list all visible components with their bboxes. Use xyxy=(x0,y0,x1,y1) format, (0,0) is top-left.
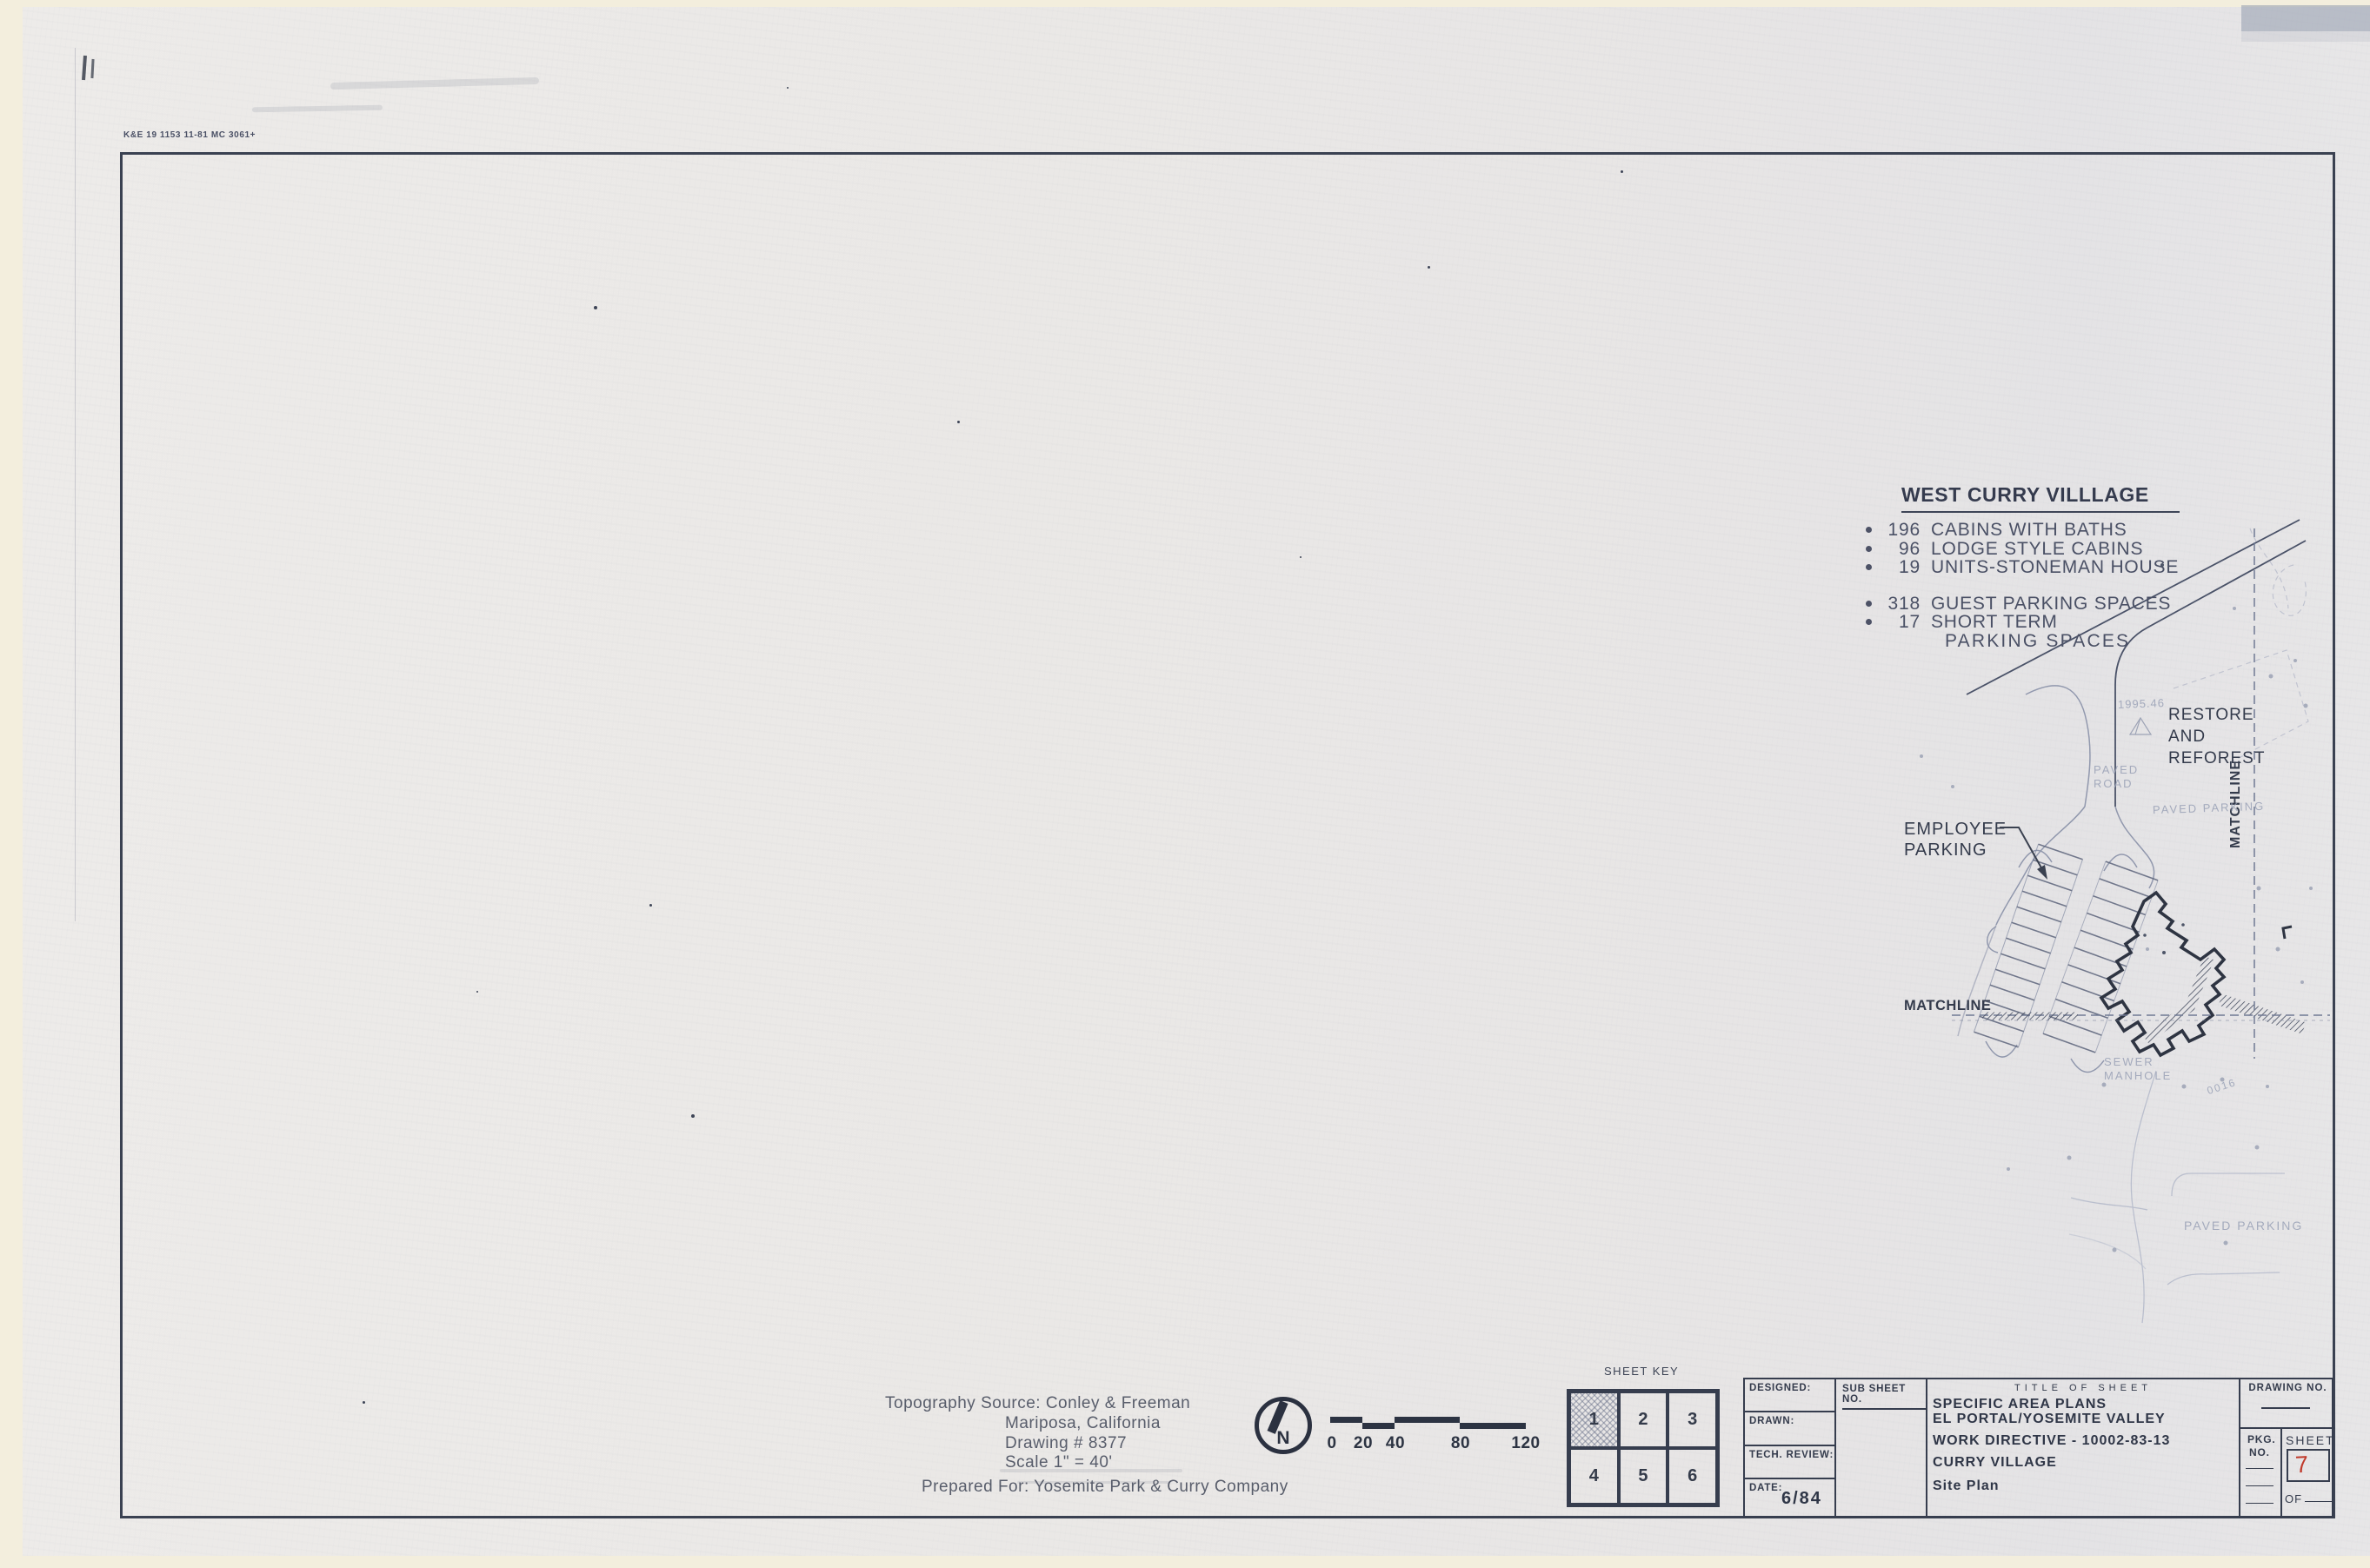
drawing-no-label: DRAWING NO. xyxy=(2240,1383,2335,1393)
bottom-faint-roads xyxy=(2069,1071,2285,1323)
bullet-icon xyxy=(1866,527,1872,533)
sheet-key-grid: 1 2 3 4 5 6 xyxy=(1567,1389,1720,1507)
note-item: 318 GUEST PARKING SPACES xyxy=(1862,595,2332,614)
note-text: LODGE STYLE CABINS xyxy=(1931,540,2143,559)
work-directive-line: WORK DIRECTIVE - 10002-83-13 xyxy=(1933,1433,2170,1449)
sub-sheet-label: SUB SHEET NO. xyxy=(1842,1384,1926,1410)
sheet-key-title: SHEET KEY xyxy=(1604,1365,1679,1378)
scale-tick-label: 120 xyxy=(1511,1434,1540,1453)
sheet-title-line1: SPECIFIC AREA PLANS xyxy=(1933,1397,2107,1412)
title-of-sheet-header: TITLE OF SHEET xyxy=(1927,1383,2239,1393)
building-bracket-mark xyxy=(2283,927,2292,939)
paper-fold-line xyxy=(75,48,76,921)
sheet-key-cell: 2 xyxy=(1619,1392,1668,1448)
of-blank xyxy=(2305,1494,2333,1502)
bullet-icon xyxy=(1866,601,1872,607)
scale-tick-label: 0 xyxy=(1327,1434,1336,1453)
title-block-signatures: DESIGNED: DRAWN: TECH. REVIEW: DATE: 6/8… xyxy=(1745,1379,1834,1516)
scan-band-top-right-2 xyxy=(2241,31,2370,42)
employee-parking-label: EMPLOYEE PARKING xyxy=(1904,819,2007,860)
note-text: CABINS WITH BATHS xyxy=(1931,521,2127,540)
note-item: 96 LODGE STYLE CABINS xyxy=(1862,540,2332,559)
pkg-no-divider xyxy=(2280,1427,2282,1516)
sheet-label: SHEET xyxy=(2286,1433,2335,1447)
title-block: DESIGNED: DRAWN: TECH. REVIEW: DATE: 6/8… xyxy=(1743,1378,2333,1518)
note-count: 96 xyxy=(1882,540,1921,559)
of-label: OF xyxy=(2285,1492,2302,1505)
note-text: SHORT TERM xyxy=(1931,613,2058,632)
notes-title: WEST CURRY VILLLAGE xyxy=(1901,483,2180,513)
pkg-blank-1 xyxy=(2246,1462,2273,1469)
scale-tick-label: 80 xyxy=(1451,1434,1470,1453)
pkg-blank-3 xyxy=(2246,1497,2273,1504)
scale-segment xyxy=(1362,1423,1395,1429)
pkg-no-label: NO. xyxy=(2249,1446,2270,1458)
paved-parking-lower-label: PAVED PARKING xyxy=(2184,1219,2303,1232)
note-count: 196 xyxy=(1882,521,1921,540)
topo-source-line: Drawing # 8377 xyxy=(1005,1434,1127,1453)
note-item: 196 CABINS WITH BATHS xyxy=(1862,521,2332,540)
sheet-key-cell: 4 xyxy=(1569,1448,1619,1505)
sheet-key-cell: 3 xyxy=(1668,1392,1717,1448)
topo-source-line: Scale 1" = 40' xyxy=(1005,1453,1113,1472)
designed-label: DESIGNED: xyxy=(1749,1383,1811,1393)
topo-source-line: Mariposa, California xyxy=(1005,1414,1161,1433)
sheet-title-line2: EL PORTAL/YOSEMITE VALLEY xyxy=(1933,1412,2166,1427)
paper-manufacturer-stamp: K&E 19 1153 11-81 MC 3061+ xyxy=(123,130,256,140)
north-arrow-icon: N xyxy=(1255,1397,1312,1454)
elevation-label: 1995.46 xyxy=(2118,696,2166,712)
paper-speck xyxy=(787,87,789,89)
north-letter: N xyxy=(1259,1428,1308,1449)
sheet-number-box: 7 xyxy=(2287,1449,2330,1482)
site-plan-line: Site Plan xyxy=(1933,1478,2000,1494)
note-count: 19 xyxy=(1882,558,1921,577)
note-item: 19 UNITS-STONEMAN HOUSE xyxy=(1862,558,2332,577)
sub-sheet-column: SUB SHEET NO. xyxy=(1834,1379,1926,1516)
sewer-manhole-label: SEWER MANHOLE xyxy=(2104,1055,2172,1083)
drawing-no-column: DRAWING NO. PKG. NO. SHEET 7 OF xyxy=(2239,1379,2335,1516)
paved-road-label: PAVED ROAD xyxy=(2094,763,2139,791)
scale-segment xyxy=(1460,1423,1526,1429)
scale-segment xyxy=(1395,1417,1460,1423)
topo-source-line: Topography Source: Conley & Freeman xyxy=(885,1394,1190,1413)
bullet-icon xyxy=(1866,564,1872,570)
west-curry-village-notes: WEST CURRY VILLLAGE 196 CABINS WITH BATH… xyxy=(1862,483,2332,650)
curry-village-line: CURRY VILLAGE xyxy=(1933,1455,2057,1471)
pkg-label: PKG. xyxy=(2247,1433,2276,1445)
pkg-blank-2 xyxy=(2246,1479,2273,1486)
drawing-no-blank xyxy=(2261,1397,2310,1409)
prepared-for-line: Prepared For: Yosemite Park & Curry Comp… xyxy=(922,1478,1288,1497)
scale-tick-label: 40 xyxy=(1386,1434,1405,1453)
bullet-icon xyxy=(1866,619,1872,625)
sheet-key-cell: 5 xyxy=(1619,1448,1668,1505)
elevation-triangle-symbol xyxy=(2130,718,2151,734)
note-text: GUEST PARKING SPACES xyxy=(1931,595,2171,614)
sheet-number-value: 7 xyxy=(2294,1452,2309,1479)
note-count: 17 xyxy=(1882,613,1921,632)
courtyard-walkway-hatch xyxy=(2146,958,2304,1040)
bullet-icon xyxy=(1866,546,1872,552)
scan-band-top-right xyxy=(2241,5,2370,31)
scale-tick-label: 20 xyxy=(1354,1434,1373,1453)
matchline-horizontal-label: MATCHLINE xyxy=(1904,998,1991,1014)
tech-review-label: TECH. REVIEW: xyxy=(1749,1450,1834,1460)
restore-reforest-label: RESTORE AND REFOREST xyxy=(2168,704,2265,769)
sheet-key-cell: 6 xyxy=(1668,1448,1717,1505)
scale-bar: 0 20 40 80 120 xyxy=(1328,1415,1530,1455)
sheet-title-column: TITLE OF SHEET SPECIFIC AREA PLANS EL PO… xyxy=(1926,1379,2239,1516)
note-count: 318 xyxy=(1882,595,1921,614)
scale-segment xyxy=(1330,1417,1362,1423)
sheet-key-cell-current: 1 xyxy=(1569,1392,1619,1448)
note-text: UNITS-STONEMAN HOUSE xyxy=(1931,558,2179,577)
date-value: 6/84 xyxy=(1781,1489,1822,1509)
date-label: DATE: xyxy=(1749,1483,1782,1493)
employee-parking-leader xyxy=(2000,827,2047,880)
drawn-label: DRAWN: xyxy=(1749,1416,1794,1426)
note-item: 17 SHORT TERM xyxy=(1862,613,2332,632)
note-continuation: PARKING SPACES xyxy=(1945,632,2332,651)
